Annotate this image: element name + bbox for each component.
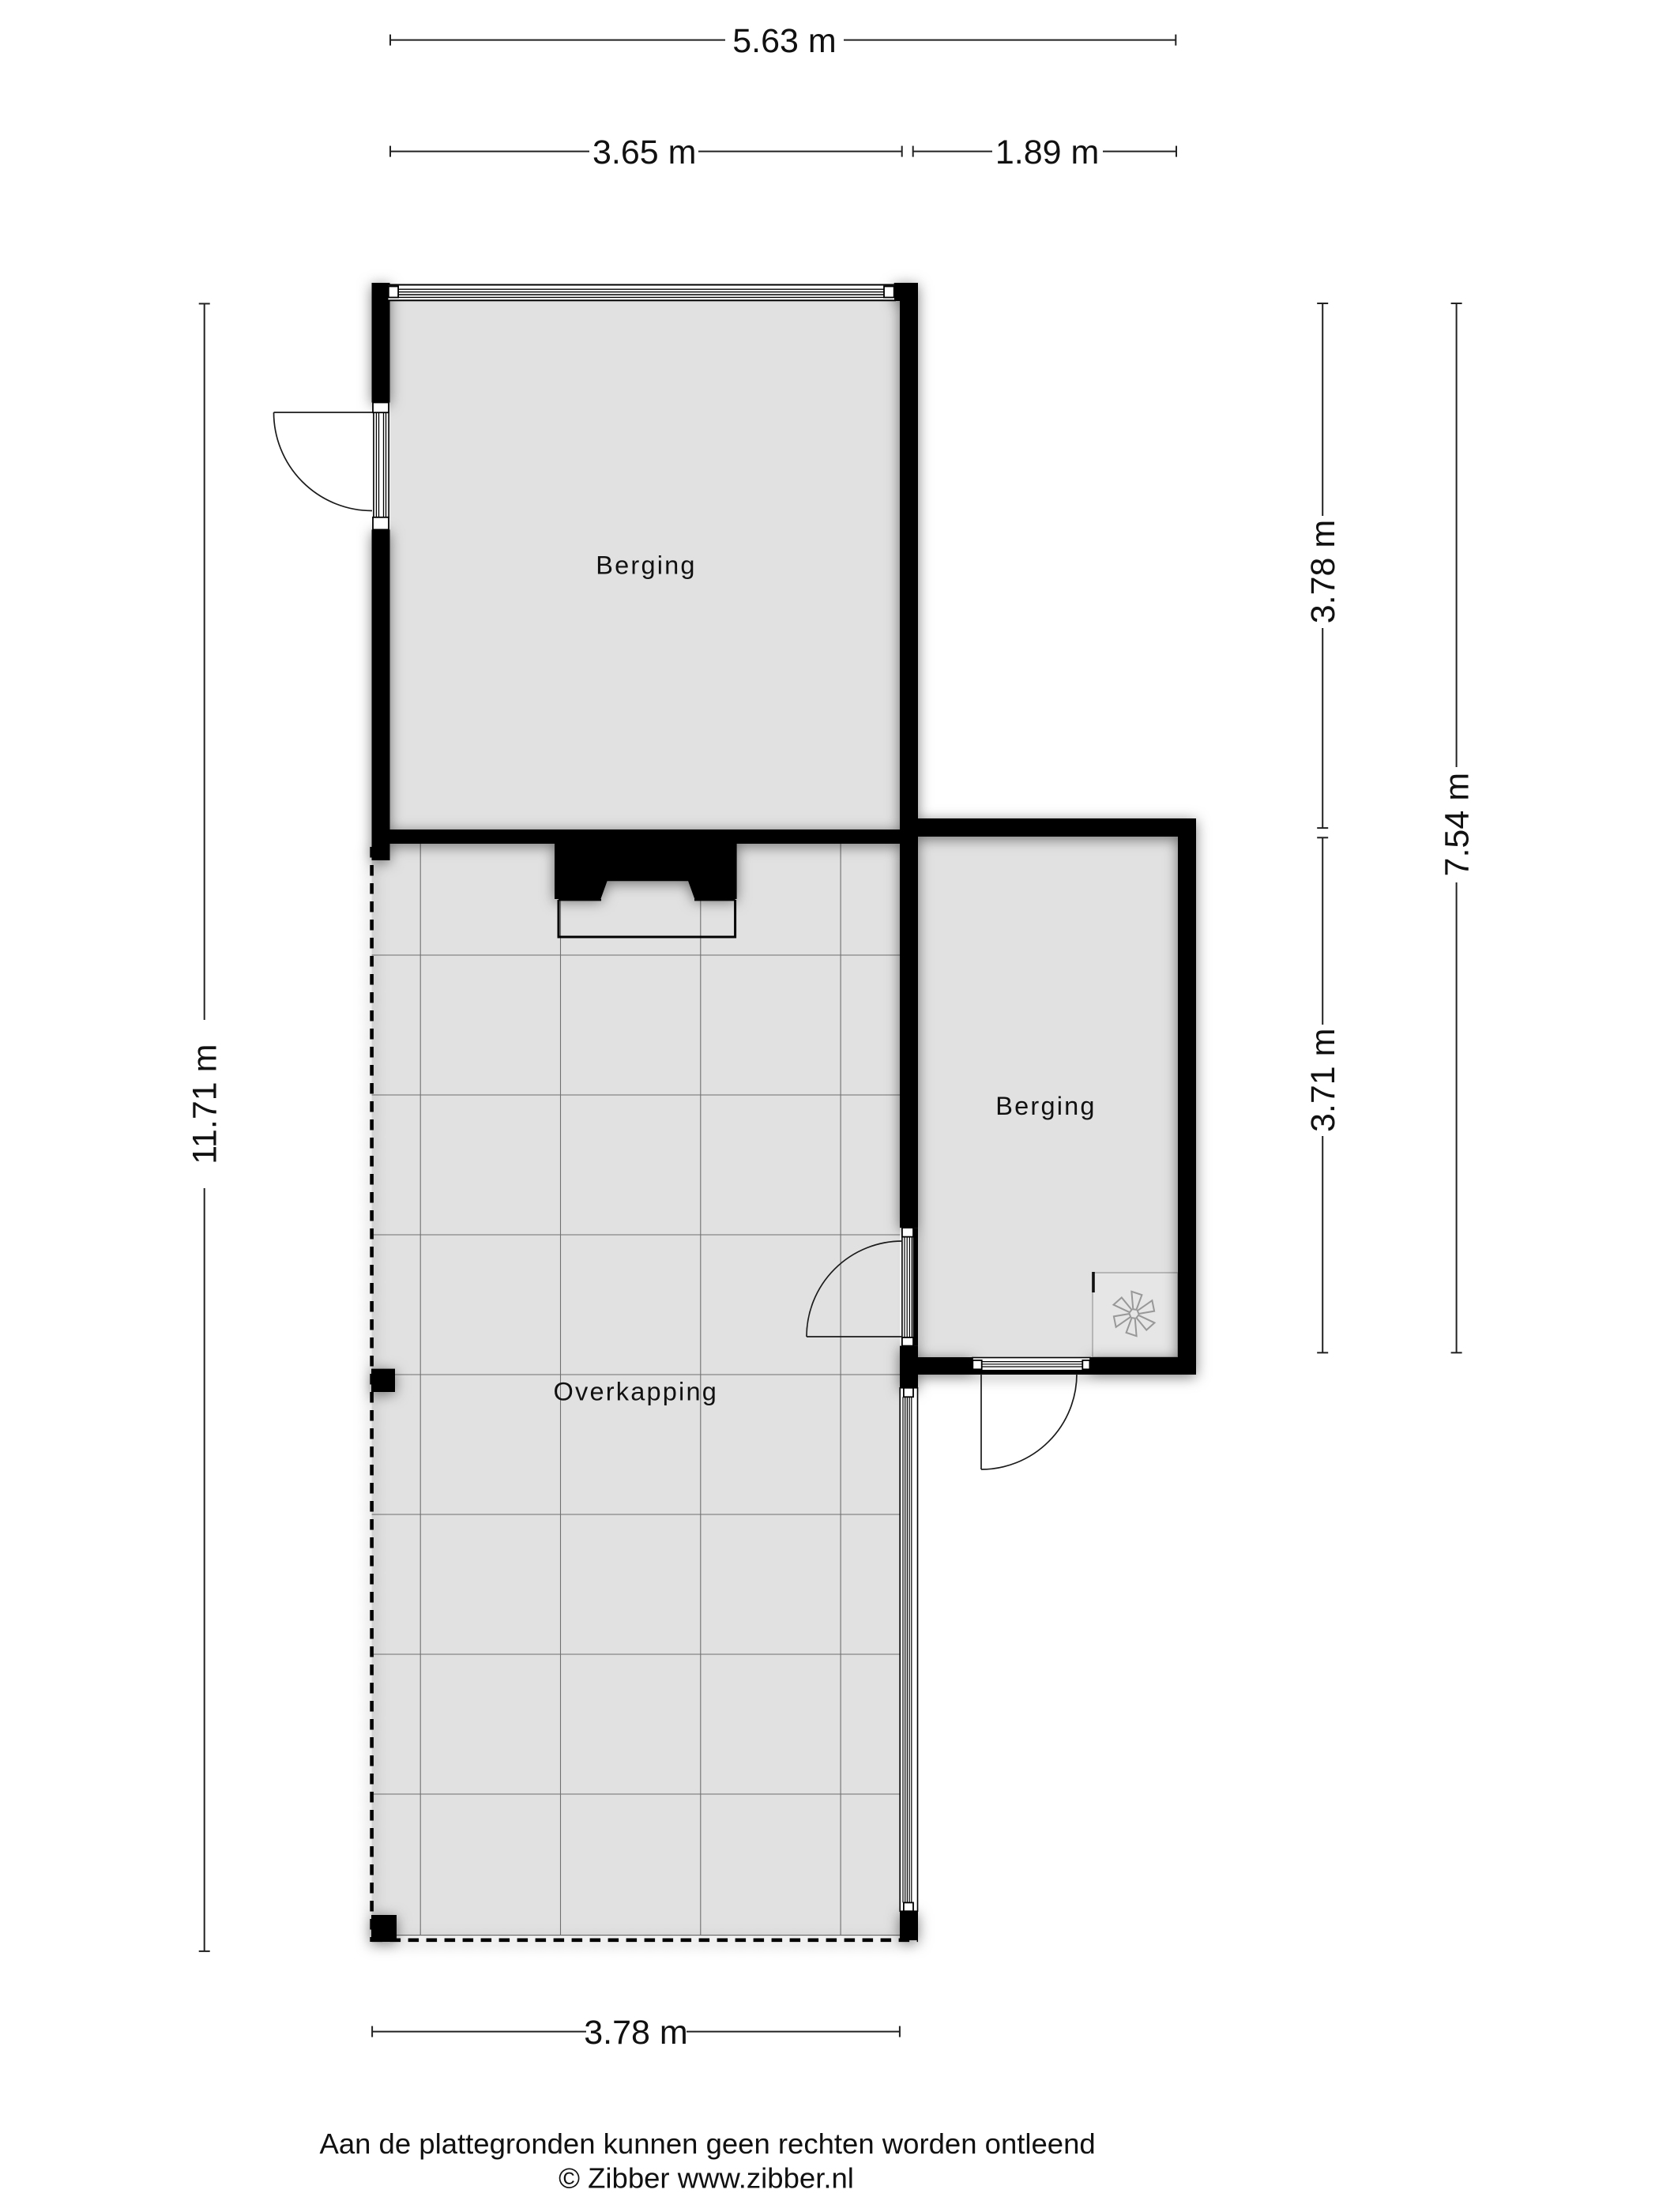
svg-text:Berging: Berging	[995, 1092, 1096, 1120]
svg-text:3.71 m: 3.71 m	[1304, 1029, 1342, 1132]
svg-text:© Zibber www.zibber.nl: © Zibber www.zibber.nl	[559, 2162, 854, 2195]
svg-text:Berging: Berging	[596, 551, 696, 580]
svg-text:1.89 m: 1.89 m	[995, 134, 1099, 171]
svg-text:5.63 m: 5.63 m	[732, 22, 836, 60]
svg-text:11.71 m: 11.71 m	[186, 1044, 224, 1164]
svg-text:3.78 m: 3.78 m	[1304, 520, 1342, 623]
svg-text:3.78 m: 3.78 m	[584, 2014, 687, 2052]
svg-text:Overkapping: Overkapping	[554, 1377, 718, 1405]
svg-text:3.65 m: 3.65 m	[592, 134, 696, 171]
svg-text:7.54 m: 7.54 m	[1439, 773, 1477, 876]
svg-text:Aan de plattegronden kunnen ge: Aan de plattegronden kunnen geen rechten…	[319, 2127, 1095, 2160]
